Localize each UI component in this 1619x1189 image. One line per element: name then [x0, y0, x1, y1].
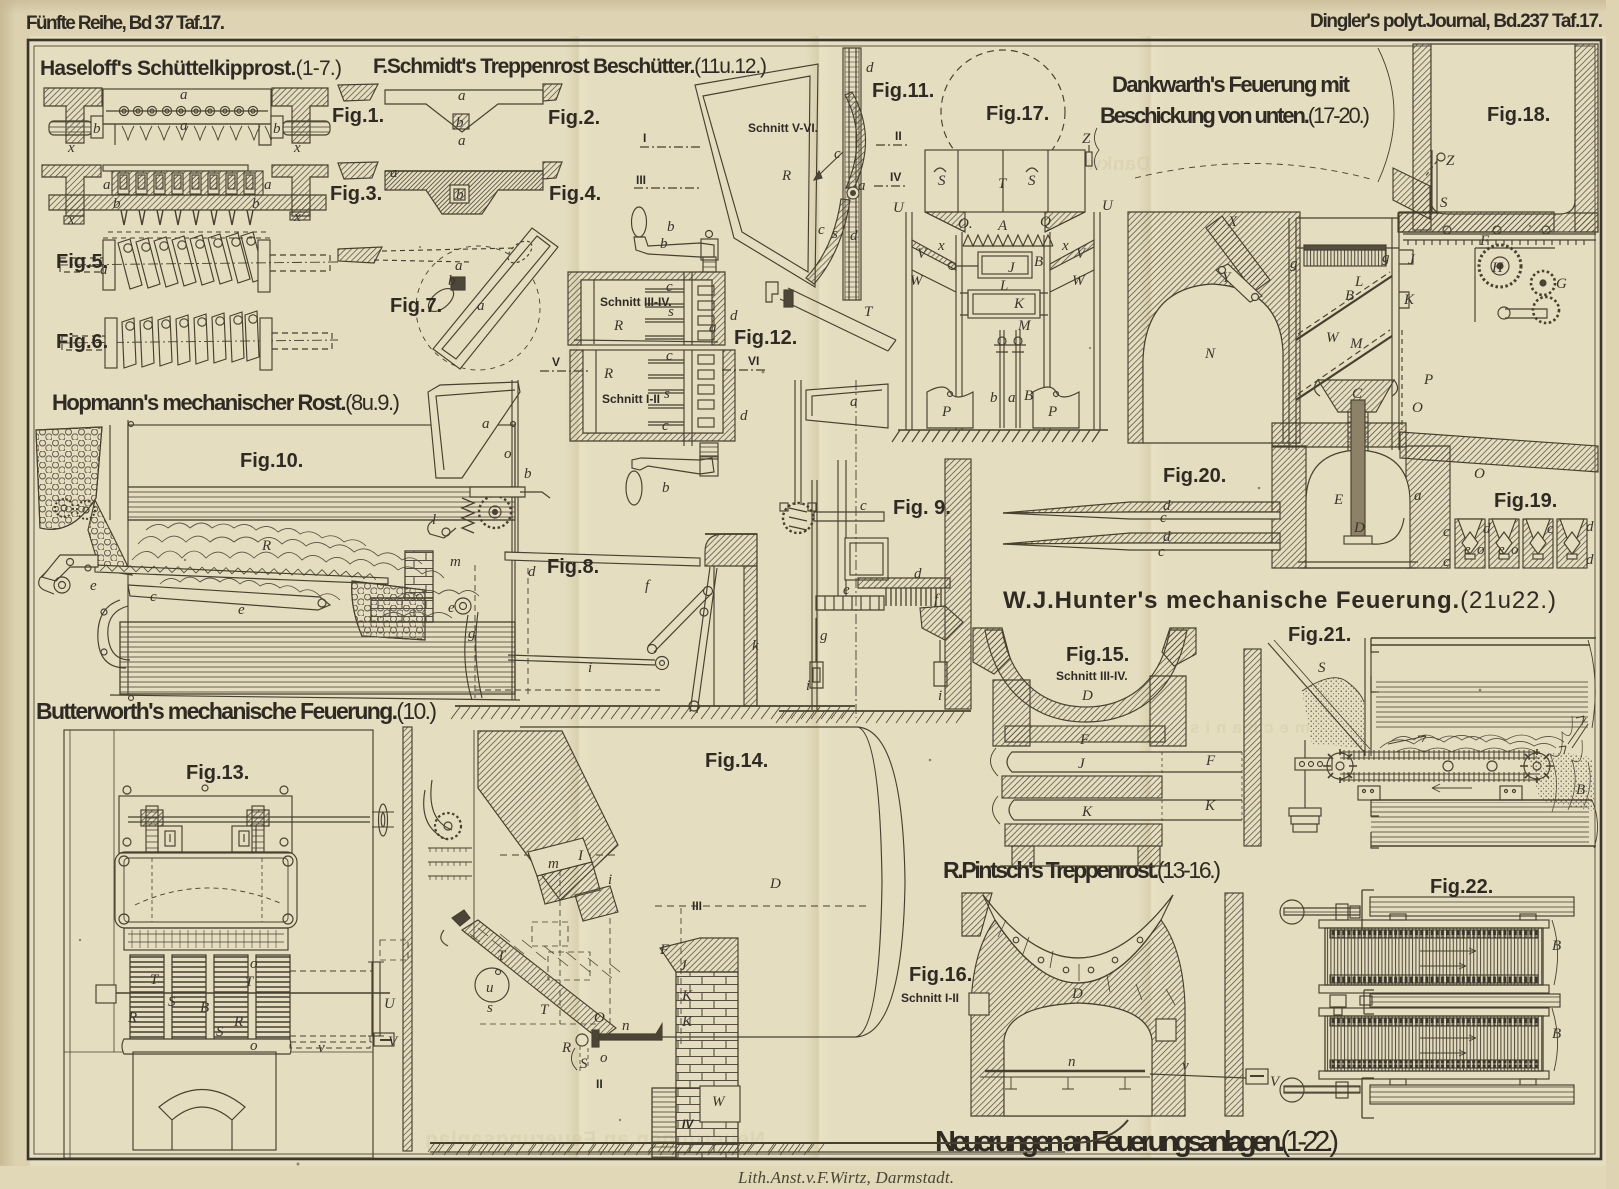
svg-text:S: S — [216, 1024, 224, 1040]
svg-text:Schnitt I-II: Schnitt I-II — [602, 392, 660, 406]
svg-text:III: III — [692, 899, 702, 913]
svg-text:Schnitt III-IV.: Schnitt III-IV. — [1056, 669, 1128, 683]
svg-text:R: R — [603, 366, 613, 382]
svg-text:a: a — [850, 394, 858, 410]
svg-text:Fig.13.: Fig.13. — [186, 762, 249, 784]
svg-text:F.Schmidt's Treppenrost Beschü: F.Schmidt's Treppenrost Beschütter.(11u.… — [373, 55, 767, 78]
svg-text:b: b — [252, 196, 260, 212]
svg-text:s: s — [832, 226, 838, 242]
svg-text:o: o — [250, 956, 258, 972]
svg-text:R: R — [781, 168, 791, 184]
svg-text:W: W — [1326, 330, 1340, 346]
svg-text:M: M — [1349, 336, 1364, 352]
svg-text:x: x — [293, 140, 301, 156]
svg-text:c: c — [860, 498, 867, 514]
svg-text:Schnitt V-VI.: Schnitt V-VI. — [748, 121, 818, 135]
svg-text:b: b — [273, 121, 281, 137]
svg-text:b: b — [448, 273, 456, 289]
svg-text:Fig.8.: Fig.8. — [547, 556, 599, 578]
svg-text:S: S — [1318, 660, 1326, 676]
svg-text:R: R — [561, 1040, 571, 1056]
svg-text:i: i — [938, 688, 942, 704]
svg-text:W: W — [712, 1094, 726, 1110]
svg-text:g: g — [820, 628, 828, 644]
svg-text:U: U — [1102, 198, 1114, 214]
svg-text:a: a — [1008, 390, 1016, 406]
svg-text:d: d — [1586, 519, 1594, 535]
svg-text:Fig.17.: Fig.17. — [986, 103, 1049, 125]
svg-text:m: m — [548, 856, 559, 872]
svg-text:Fig. 9.: Fig. 9. — [893, 497, 951, 519]
svg-text:D: D — [1353, 520, 1365, 536]
svg-text:d: d — [528, 564, 536, 580]
svg-text:Schnitt III-IV.: Schnitt III-IV. — [600, 295, 672, 309]
svg-text:K: K — [1204, 798, 1216, 814]
svg-text:g: g — [1290, 256, 1298, 272]
svg-text:g: g — [468, 626, 476, 642]
svg-text:Q: Q — [1040, 214, 1051, 230]
svg-text:D: D — [1071, 986, 1083, 1002]
svg-text:e: e — [448, 600, 455, 616]
svg-text:Fig.4.: Fig.4. — [549, 183, 601, 205]
svg-text:a: a — [180, 87, 188, 103]
svg-text:R: R — [127, 1010, 137, 1026]
svg-text:d: d — [740, 408, 748, 424]
svg-text:X: X — [1227, 214, 1238, 230]
svg-text:a: a — [709, 320, 717, 336]
svg-text:Fig.14.: Fig.14. — [705, 750, 768, 772]
svg-text:P: P — [1423, 372, 1433, 388]
svg-text:Lith.Anst.v.F.Wirtz, Darmstadt: Lith.Anst.v.F.Wirtz, Darmstadt. — [737, 1168, 954, 1187]
svg-text:II: II — [596, 1077, 603, 1091]
svg-text:O: O — [1474, 466, 1485, 482]
svg-text:c: c — [150, 589, 157, 605]
svg-text:Butterworth's mechanische Feue: Butterworth's mechanische Feuerung.(10.) — [36, 698, 437, 724]
svg-text:e: e — [1498, 542, 1505, 558]
svg-text:o: o — [504, 446, 512, 462]
svg-text:IV: IV — [682, 1117, 694, 1131]
svg-text:i: i — [588, 660, 592, 676]
svg-text:IV: IV — [890, 170, 901, 184]
svg-text:a: a — [458, 88, 466, 104]
svg-text:b: b — [662, 480, 670, 496]
svg-text:M: M — [1017, 318, 1032, 334]
svg-text:Beschickung von unten.(17-20.): Beschickung von unten.(17-20.) — [1100, 103, 1370, 128]
svg-text:R.Pintsch's Treppenrost.(13-16: R.Pintsch's Treppenrost.(13-16.) — [943, 857, 1221, 883]
svg-text:Fig.11.: Fig.11. — [872, 80, 934, 102]
svg-text:O: O — [594, 1010, 605, 1026]
svg-text:N: N — [1204, 346, 1216, 362]
svg-text:a: a — [264, 177, 272, 193]
svg-text:R: R — [261, 538, 271, 554]
svg-text:Fig.10.: Fig.10. — [240, 450, 303, 472]
svg-text:g: g — [1382, 250, 1390, 266]
svg-text:o: o — [600, 1050, 608, 1066]
svg-text:e: e — [1464, 542, 1471, 558]
svg-text:n: n — [1068, 1054, 1076, 1070]
svg-text:b: b — [93, 121, 101, 137]
svg-text:e: e — [238, 602, 245, 618]
svg-text:c: c — [1160, 510, 1167, 526]
svg-text:b: b — [667, 219, 675, 235]
svg-text:Schnitt I-II: Schnitt I-II — [901, 991, 959, 1005]
svg-text:c: c — [666, 279, 673, 295]
svg-text:F: F — [1079, 732, 1090, 748]
svg-text:a: a — [1414, 488, 1422, 504]
svg-text:R: R — [233, 1014, 243, 1030]
svg-text:S: S — [1440, 195, 1448, 211]
svg-text:a: a — [482, 416, 490, 432]
svg-text:P: P — [1047, 404, 1057, 420]
svg-text:R: R — [613, 318, 623, 334]
svg-text:B: B — [1576, 782, 1585, 798]
svg-text:K: K — [681, 988, 693, 1004]
svg-text:i: i — [608, 872, 612, 888]
svg-text:k: k — [752, 638, 759, 654]
svg-text:d: d — [730, 308, 738, 324]
svg-text:V: V — [552, 355, 560, 369]
svg-text:c: c — [1158, 544, 1165, 560]
svg-text:B: B — [1552, 938, 1561, 954]
svg-text:a: a — [390, 165, 398, 181]
svg-text:c: c — [834, 146, 841, 162]
svg-text:d: d — [914, 566, 922, 582]
svg-text:O.: O. — [958, 216, 973, 232]
svg-text:Z: Z — [1082, 131, 1091, 147]
svg-text:a: a — [858, 178, 866, 194]
svg-text:x: x — [67, 140, 75, 156]
svg-text:b: b — [660, 236, 668, 252]
svg-text:c: c — [666, 348, 673, 364]
svg-text:D: D — [1081, 688, 1093, 704]
svg-text:A: A — [997, 218, 1008, 234]
svg-text:B: B — [1034, 254, 1043, 270]
svg-text:s: s — [664, 386, 670, 402]
svg-text:Fig.5.: Fig.5. — [56, 251, 108, 273]
svg-text:s: s — [487, 1000, 493, 1016]
svg-text:U: U — [893, 200, 905, 216]
svg-text:Fig.20.: Fig.20. — [1163, 465, 1226, 487]
svg-text:K: K — [1081, 804, 1093, 820]
svg-text:S: S — [168, 994, 176, 1010]
svg-text:Haseloff's Schüttelkipprost.(1: Haseloff's Schüttelkipprost.(1-7.) — [40, 57, 342, 80]
svg-text:Fig.15.: Fig.15. — [1066, 644, 1129, 666]
svg-text:a: a — [180, 118, 188, 134]
svg-text:a: a — [455, 258, 463, 274]
svg-text:C: C — [1352, 386, 1363, 402]
svg-text:d: d — [1586, 552, 1594, 568]
svg-text:Fig.3.: Fig.3. — [330, 183, 382, 205]
svg-text:G: G — [1556, 276, 1567, 292]
svg-text:B: B — [1552, 1026, 1561, 1042]
svg-text:Fig.16.: Fig.16. — [909, 964, 972, 986]
svg-text:l: l — [432, 512, 436, 528]
svg-text:Fig.7.: Fig.7. — [390, 295, 442, 317]
svg-text:m: m — [450, 554, 461, 570]
svg-text:P: P — [941, 404, 951, 420]
svg-text:Fig.6.: Fig.6. — [56, 331, 108, 353]
svg-text:v: v — [1182, 1058, 1189, 1074]
svg-text:III: III — [636, 173, 646, 187]
svg-text:L: L — [1354, 274, 1363, 290]
svg-text:d: d — [1483, 521, 1491, 537]
svg-text:Hopmann's mechanischer Rost.(8: Hopmann's mechanischer Rost.(8u.9.) — [52, 390, 400, 415]
svg-text:K: K — [1013, 296, 1025, 312]
svg-text:II: II — [895, 129, 902, 143]
svg-text:x: x — [293, 209, 301, 225]
svg-text:n: n — [622, 1018, 630, 1034]
svg-text:o: o — [1511, 542, 1519, 558]
svg-text:d: d — [850, 228, 858, 244]
svg-text:u: u — [486, 980, 494, 996]
svg-text:x: x — [937, 238, 945, 254]
svg-text:c: c — [1547, 521, 1554, 537]
svg-text:I: I — [643, 131, 646, 145]
svg-text:e: e — [90, 578, 97, 594]
svg-text:W: W — [1072, 273, 1086, 289]
svg-text:Fig.1.: Fig.1. — [332, 105, 384, 127]
svg-text:Dankwarth's Feuerung mit: Dankwarth's Feuerung mit — [1112, 72, 1351, 97]
svg-text:F: F — [1479, 233, 1490, 249]
svg-text:d: d — [866, 60, 874, 76]
svg-text:c: c — [662, 418, 669, 434]
svg-text:c: c — [1443, 524, 1450, 540]
svg-text:Fünfte Reihe, Bd 37 Taf.17.: Fünfte Reihe, Bd 37 Taf.17. — [26, 13, 225, 34]
svg-text:b: b — [524, 466, 532, 482]
svg-text:c: c — [1443, 554, 1450, 570]
svg-text:Fig.19.: Fig.19. — [1494, 490, 1557, 512]
svg-text:Fig.18.: Fig.18. — [1487, 104, 1550, 126]
svg-text:D: D — [769, 876, 781, 892]
svg-text:d: d — [1163, 529, 1171, 545]
svg-text:a: a — [477, 298, 485, 314]
svg-text:B: B — [1024, 388, 1033, 404]
svg-text:o: o — [1477, 542, 1485, 558]
svg-text:L: L — [999, 278, 1008, 294]
svg-text:Fig.22.: Fig.22. — [1430, 876, 1493, 898]
svg-text:v: v — [318, 1040, 325, 1056]
svg-text:Fig.12.: Fig.12. — [734, 327, 797, 349]
svg-text:O: O — [1412, 400, 1423, 416]
svg-text:W.J.Hunter's mechanische Feuer: W.J.Hunter's mechanische Feuerung.(21u22… — [1003, 587, 1556, 614]
svg-text:a: a — [103, 177, 111, 193]
svg-text:K: K — [681, 1014, 693, 1030]
svg-text:W: W — [910, 273, 924, 289]
svg-text:B: B — [200, 1000, 209, 1016]
svg-text:i: i — [806, 678, 810, 694]
svg-text:S: S — [938, 173, 946, 189]
svg-text:c: c — [818, 222, 825, 238]
svg-text:K: K — [1403, 292, 1415, 308]
svg-text:Fig.2.: Fig.2. — [548, 107, 600, 129]
svg-text:F: F — [659, 942, 670, 958]
svg-text:S: S — [580, 1056, 588, 1072]
svg-text:b: b — [456, 115, 464, 131]
svg-text:x: x — [1061, 238, 1069, 254]
svg-text:b: b — [990, 390, 998, 406]
svg-text:S: S — [1028, 173, 1036, 189]
svg-text:x: x — [67, 212, 75, 228]
svg-text:E: E — [1333, 492, 1343, 508]
svg-text:U: U — [384, 996, 396, 1012]
svg-text:b: b — [456, 187, 464, 203]
svg-text:Dingler's polyt.Journal, Bd.23: Dingler's polyt.Journal, Bd.237 Taf.17. — [1310, 11, 1603, 32]
svg-text:o: o — [250, 1038, 258, 1054]
svg-text:Fig.21.: Fig.21. — [1288, 624, 1351, 646]
svg-text:H: H — [1491, 260, 1504, 276]
svg-text:VI: VI — [748, 354, 759, 368]
svg-text:Z: Z — [1446, 153, 1455, 169]
svg-text:F: F — [1205, 753, 1216, 769]
svg-text:e: e — [843, 582, 850, 598]
svg-text:a: a — [458, 133, 466, 149]
svg-text:B: B — [1345, 288, 1354, 304]
svg-text:b: b — [113, 196, 121, 212]
svg-text:I: I — [577, 848, 584, 864]
